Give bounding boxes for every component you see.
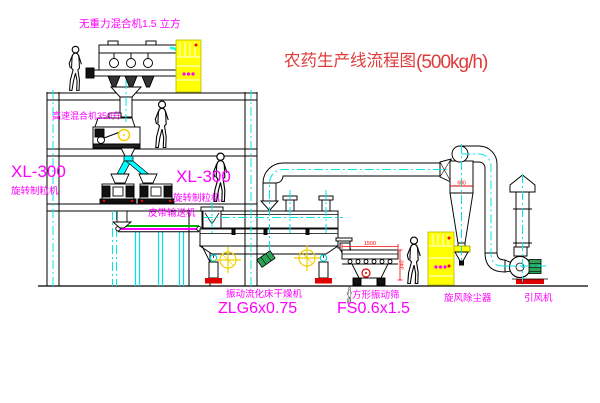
- dim-sieve-length: 1500: [364, 241, 376, 247]
- label-top-mixer: 无重力混合机1.5 立方: [79, 17, 181, 30]
- dim-cyclone: 600: [457, 181, 466, 187]
- control-cabinet-right: [428, 232, 454, 285]
- label-cyclone-name: 旋风除尘器: [444, 292, 492, 304]
- cad-drawing: 农药生产线流程图 (500kg/h) 无重力混合机1.5 立方 高速混合机350…: [0, 0, 600, 403]
- drawing-title: 农药生产线流程图: [284, 51, 416, 70]
- label-dryer-model: ZLG6x0.75: [218, 300, 297, 317]
- control-cabinet-top: [176, 40, 201, 92]
- drawing-title-capacity: (500kg/h): [416, 52, 488, 73]
- label-granulator-right-name: 旋转制粒机: [173, 192, 221, 204]
- indicator-light-icon: [448, 237, 451, 240]
- dim-sieve-height: 340: [400, 260, 406, 269]
- label-granulator-right-model: XL-300: [176, 167, 231, 186]
- label-dryer-name: 振动流化床干燥机: [226, 288, 303, 300]
- label-belt-conveyor: 皮带输送机: [148, 207, 196, 219]
- label-sieve-model: FS0.6x1.5: [337, 300, 410, 317]
- label-high-speed-mixer: 高速混合机350升: [52, 110, 121, 121]
- label-fan-name: 引风机: [524, 292, 553, 304]
- drawing-svg: 农药生产线流程图 (500kg/h) 无重力混合机1.5 立方 高速混合机350…: [0, 0, 600, 403]
- indicator-light-icon: [195, 44, 198, 47]
- label-granulator-left-name: 旋转制粒机: [11, 185, 59, 197]
- label-granulator-left-model: XL-300: [11, 162, 66, 181]
